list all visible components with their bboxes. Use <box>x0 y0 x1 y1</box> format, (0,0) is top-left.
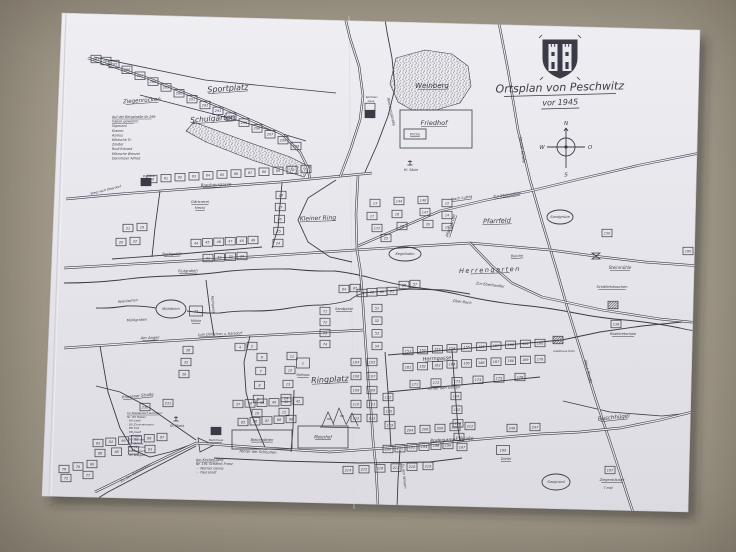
house-number: 24 <box>276 241 280 245</box>
house-number: 168 <box>507 359 514 363</box>
house-number: 23 <box>194 309 198 313</box>
map-label-text: Gasthaus Kahl <box>553 349 575 353</box>
house-number: 71 <box>304 167 308 171</box>
map-label: Mühle <box>191 319 201 323</box>
map-label: 7 mal <box>604 486 613 490</box>
house-number: 297 <box>267 133 274 137</box>
house-number: 138 <box>613 322 620 326</box>
map-label-text: Kegelbahn <box>396 252 416 256</box>
house-number: 42 <box>296 399 300 403</box>
house-number: 16 <box>395 212 399 216</box>
house-number: 63 <box>192 175 196 179</box>
map-label: Bleichgärten <box>251 438 275 442</box>
house-number: 295 <box>241 121 247 125</box>
house-number: 147 <box>422 210 429 214</box>
house-number: 74 <box>323 342 327 346</box>
house-number: 196 <box>433 444 439 448</box>
map-label: Dörfel <box>501 457 511 461</box>
house-number: 62 <box>178 175 182 179</box>
house-number: 285 <box>111 62 117 66</box>
house-number: 86 <box>98 451 102 455</box>
house-number: 134 <box>453 394 459 398</box>
house-number: 52 <box>375 319 379 323</box>
house-number: 187 <box>459 445 466 449</box>
house-number: 162 <box>419 364 425 368</box>
map-label: Brauerei <box>143 174 155 178</box>
map-label: Kegelbahn <box>396 252 416 256</box>
house-number: 105 <box>369 360 375 364</box>
house-number: 110 <box>353 402 359 406</box>
house-number: 5 <box>251 344 253 348</box>
house-number: 66 <box>234 172 238 176</box>
house-number: 70 <box>290 168 294 172</box>
house-number: 71 <box>323 309 327 313</box>
house-number: 40 <box>272 401 276 405</box>
resident-list-line: Kötzsche Tr. <box>112 138 132 142</box>
house-number: 214 <box>345 468 351 472</box>
house-number: 154 <box>449 347 455 351</box>
house-number: 210 <box>452 425 458 429</box>
map-label-text: Flutgraben <box>178 269 198 274</box>
resident-list-line: Kötzsche Wenzel <box>112 152 140 156</box>
house-number: 54 <box>375 344 379 348</box>
map-label-text: Backhaus <box>209 438 224 442</box>
house-number: 217 <box>393 466 400 470</box>
house-number: 13 <box>286 382 290 386</box>
house-number: 163 <box>434 364 440 368</box>
house-number: 298 <box>280 138 287 142</box>
map-label: Kleiner Ring <box>300 214 337 222</box>
map-label-text: Friedhof <box>421 119 449 127</box>
house-number: 20 <box>426 222 430 226</box>
house-number: 107 <box>369 374 376 378</box>
house-number: 44 <box>194 241 198 245</box>
map-label: Mühlteich <box>162 307 180 311</box>
house-number: 120 <box>386 409 392 413</box>
house-number: 122 <box>385 395 391 399</box>
map-label: Meierhof <box>314 434 332 439</box>
house-number: 231 <box>165 401 171 405</box>
house-number: 12 <box>288 368 292 372</box>
house-number: 160 <box>537 341 543 345</box>
title-line2: vor 1945 <box>542 98 578 108</box>
map-label-text: Steinmühle <box>609 265 632 270</box>
house-number: 69 <box>276 169 280 173</box>
house-number: 33 <box>229 255 233 259</box>
house-number: 132 <box>454 408 460 412</box>
house-number: 197 <box>607 468 614 472</box>
house-number: 218 <box>409 465 416 469</box>
house-number: 85 <box>241 420 245 424</box>
house-number: 89 <box>289 417 293 421</box>
house-number: 104 <box>353 360 359 364</box>
house-number: 194 <box>421 445 427 449</box>
house-number: 215 <box>361 468 367 472</box>
house-number: 11 <box>290 354 294 358</box>
house-number: 167 <box>493 360 500 364</box>
house-number: 73 <box>323 331 327 335</box>
house-number: 172 <box>374 226 380 230</box>
house-number: 284 <box>103 59 109 63</box>
house-number: 165 <box>463 362 469 366</box>
house-number: 212 <box>467 424 473 428</box>
house-number: 86 <box>253 420 257 424</box>
map-label-text: Hl. Säule <box>404 168 418 172</box>
compass-w: W <box>539 145 545 151</box>
map-label: Am Anger <box>139 335 159 341</box>
house-number: 208 <box>437 426 444 430</box>
map-label: Weinberg <box>415 82 449 90</box>
house-number: 25 <box>384 236 388 240</box>
house-number: 32 <box>217 256 221 260</box>
house-number: 159 <box>522 342 528 346</box>
house-number: 35 <box>184 360 188 364</box>
map-label: Hl. Säule <box>404 168 418 172</box>
house-number: 247 <box>532 425 539 429</box>
map-label-text: 7 mal <box>604 486 613 490</box>
house-number: 81 <box>390 289 394 293</box>
house-number: 19 <box>140 225 144 229</box>
map-label-text: Bleichgärten <box>251 438 275 442</box>
house-number: 20 <box>119 240 123 244</box>
house-number: 164 <box>449 363 455 367</box>
map-label: Gasthaus Kahl <box>553 349 575 353</box>
house-number: 173 <box>454 380 460 384</box>
house-number: 75 <box>64 476 68 480</box>
resident-list-line: · · Paul Josef <box>196 471 217 475</box>
house-number: 26 <box>277 217 281 221</box>
house-number: 176 <box>517 375 523 379</box>
map-label: Bachgasse <box>162 252 182 257</box>
house-number: 90 <box>121 439 125 443</box>
house-number: 144 <box>396 199 402 203</box>
map-label: Heckl <box>195 205 206 210</box>
resident-list-line: Zeidler <box>111 143 124 147</box>
house-number: 161 <box>405 365 411 369</box>
house-number: 289 <box>163 86 169 90</box>
house-number: 93 <box>148 447 152 451</box>
house-number: 1 <box>302 361 304 365</box>
compass-o: O <box>588 145 593 151</box>
map-label-text: Kirche <box>410 132 420 136</box>
house-number: 84 <box>342 287 346 291</box>
map-label-text: Weinberg <box>415 82 449 90</box>
house-number: 155 <box>463 346 469 350</box>
house-number: 157 <box>493 344 500 348</box>
house-number: 216 <box>377 467 383 471</box>
map-label: Schäferhäuschen <box>596 285 628 289</box>
house-box <box>211 427 221 435</box>
map-label: Brauhausgasse <box>201 181 232 187</box>
house-number: 14 <box>445 213 449 217</box>
house-number: 198 <box>445 443 452 447</box>
house-number: 84 <box>109 440 113 444</box>
house-number: 80 <box>380 290 384 294</box>
house-number: 56 <box>402 283 406 287</box>
house-number: 10 <box>255 411 259 415</box>
resident-list-line: Dammeier Alfred <box>112 156 141 160</box>
house-number: 76 <box>360 291 364 295</box>
house-number: 148 <box>420 198 427 202</box>
house-number: 166 <box>478 361 484 365</box>
map-label: Pfarrfeld <box>482 216 512 225</box>
house-number: 6 <box>261 355 263 359</box>
compass-s: S <box>564 173 568 179</box>
house-box <box>141 178 151 186</box>
map-label: Bleiche <box>511 254 524 259</box>
house-number: 192 <box>409 446 415 450</box>
house-number: 290 <box>176 92 182 96</box>
house-number: 113 <box>369 416 375 420</box>
house-number: 39 <box>260 401 264 405</box>
map-label-text: Brauerei <box>143 174 155 178</box>
house-number: 190 <box>385 447 391 451</box>
house-number: 30 <box>182 372 186 376</box>
house-number: 45 <box>205 241 209 245</box>
house-number: 175 <box>496 377 502 381</box>
house-number: 153 <box>434 348 440 352</box>
house-number: 106 <box>353 374 359 378</box>
house-number: 22 <box>133 239 137 243</box>
house-number: 4 <box>239 345 241 349</box>
map-label: haus <box>368 99 375 103</box>
map-label-text: Rathaus <box>296 373 309 377</box>
map-label: Rathaus <box>296 373 309 377</box>
house-number: 96 <box>147 437 151 441</box>
resident-list-line: Rudl Eduard <box>112 147 133 151</box>
map-label-text: Am Anger <box>139 335 159 341</box>
house-box <box>608 301 618 309</box>
house-number: 34 <box>240 254 244 258</box>
map-label: Sandplatz <box>335 307 353 311</box>
house-number: 199 <box>500 448 506 452</box>
house-number: 288 <box>150 80 157 84</box>
resident-list-line: Auf der Bergstraße Nr 299 <box>111 115 156 119</box>
map-label-text: Dörfel <box>501 457 511 461</box>
map-label: Gärtnerei <box>191 199 210 204</box>
house-number: 36 <box>186 348 190 352</box>
house-number: 64 <box>206 174 210 178</box>
house-number: 12 <box>445 201 449 205</box>
house-number: 31 <box>206 256 210 260</box>
house-number: 21 <box>126 226 130 230</box>
house-number: 83 <box>96 441 100 445</box>
map-label-text: Mühlteich <box>162 307 180 311</box>
map-label-text: Heckl <box>195 205 206 210</box>
house-number: 160 <box>685 249 691 253</box>
house-number: 109 <box>369 388 375 392</box>
house-number: 204 <box>407 428 413 432</box>
house-number: 49 <box>251 238 255 242</box>
house-number: 15 <box>282 410 286 414</box>
house-number: 46 <box>217 240 221 244</box>
map-label-text: Sandplatz <box>335 307 353 311</box>
house-number: 53 <box>375 332 379 336</box>
map-label: Ziegenhäuser <box>599 478 625 482</box>
house-number: 76 <box>62 467 66 471</box>
house-number: 111 <box>369 402 375 406</box>
compass-n: N <box>564 121 568 127</box>
house-number: 291 <box>189 97 195 101</box>
map-label: St. Maria <box>170 424 184 428</box>
map-label-text: Sandgrube <box>550 215 570 219</box>
house-number: 283 <box>93 57 99 61</box>
house-number: 287 <box>137 74 144 78</box>
resident-list-line: haben gewohnt: <box>112 120 139 124</box>
house-number: 41 <box>284 400 288 404</box>
house-box <box>553 336 563 344</box>
resident-list-line: Klamm <box>112 129 124 133</box>
map-label-text: Bachgasse <box>162 252 182 257</box>
resident-list-line: Asmus <box>111 133 123 137</box>
map-label-text: Gärtnerei <box>191 199 210 204</box>
house-number: 25 <box>277 229 281 233</box>
map-label: Friedhof <box>421 119 449 127</box>
house-number: 191 <box>397 447 403 451</box>
map-label-text: Ziegenhäuser <box>599 478 625 482</box>
house-number: 65 <box>220 173 224 177</box>
map-label-text: St. Maria <box>170 424 184 428</box>
map-label: Saugrund <box>547 480 565 484</box>
photo-of-map: KircheMeierhofBleichgärtenMühlteichKegel… <box>0 0 736 552</box>
map-label-text: haus <box>368 99 375 103</box>
house-number: 151 <box>405 349 411 353</box>
house-number: 172 <box>433 381 439 385</box>
house-number: 230 <box>142 405 148 409</box>
house-number: 170 <box>537 357 543 361</box>
house-number: 72 <box>323 320 327 324</box>
map-label-text: Mühle <box>191 319 201 323</box>
map-label: Sandgrube <box>550 215 570 219</box>
resident-list-line: Sigmund <box>112 124 127 128</box>
house-number: 296 <box>254 127 260 131</box>
map-canvas: KircheMeierhofBleichgärtenMühlteichKegel… <box>0 0 736 552</box>
house-number: 286 <box>124 68 130 72</box>
map-label: Backhaus <box>209 438 224 442</box>
house-number: 13 <box>373 201 377 205</box>
house-number: 158 <box>507 343 514 347</box>
map-label-text: Rodekretscham <box>610 332 637 336</box>
map-label: Steinmühle <box>609 265 632 270</box>
house-number: 206 <box>422 427 428 431</box>
map-label-text: Schäferhäuschen <box>596 285 628 289</box>
house-number: 174 <box>475 378 481 382</box>
map-label: Flutgraben <box>178 269 198 274</box>
house-number: 292 <box>202 103 208 107</box>
house-number: 61 <box>164 176 168 180</box>
house-number: 152 <box>419 348 425 352</box>
house-number: 150 <box>604 231 610 235</box>
house-number: 80 <box>90 462 94 466</box>
house-number: 51 <box>375 306 379 310</box>
map-label: Rodekretscham <box>610 332 637 336</box>
house-number: 169 <box>522 358 528 362</box>
house-number: 119 <box>387 423 393 427</box>
woods-area <box>390 50 471 110</box>
house-box <box>365 110 375 118</box>
house-number: 219 <box>425 464 431 468</box>
house-number: 108 <box>353 388 360 392</box>
house-number: 171 <box>412 382 418 386</box>
map-label-text: Saugrund <box>547 480 565 484</box>
house-number: 156 <box>478 345 484 349</box>
house-number: 249 <box>509 426 515 430</box>
map-label: Kirche <box>410 132 420 136</box>
house-number: 299 <box>293 144 299 148</box>
map-label-text: Meierhof <box>314 434 332 439</box>
resident-list-line: · 95 Weigert <box>127 453 146 457</box>
